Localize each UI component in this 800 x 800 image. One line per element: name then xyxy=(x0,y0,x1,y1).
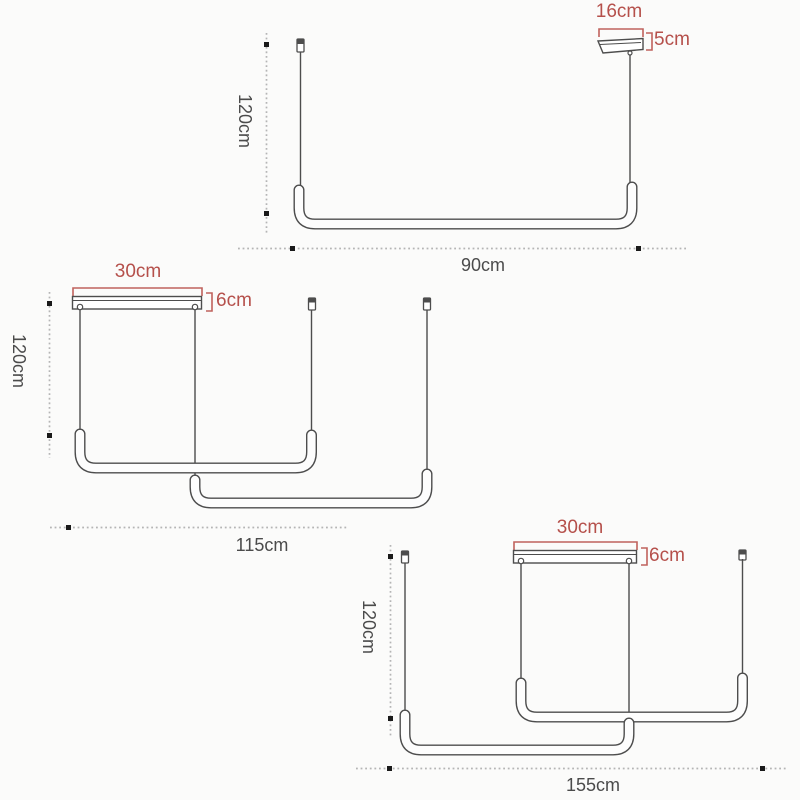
f2-light-bar-lower xyxy=(195,474,427,503)
f1-canopy-height-label: 5cm xyxy=(632,30,712,50)
f2-canopy xyxy=(73,297,202,310)
fixture-115cm-drawing xyxy=(47,288,431,530)
f2-drop-marker-bottom xyxy=(47,433,52,438)
f2-light-bar-upper xyxy=(80,434,312,468)
f2-canopy-width-label: 30cm xyxy=(98,262,178,282)
f1-wire-connector xyxy=(628,51,632,55)
f1-width-marker-right xyxy=(636,246,641,251)
f2-ceiling-mount-right-cap xyxy=(424,299,430,303)
f1-bar-width-label: 90cm xyxy=(443,255,523,275)
fixture-90cm-drawing xyxy=(238,29,686,251)
f2-hanger-left xyxy=(77,304,82,309)
f1-drop-marker-bottom xyxy=(264,211,269,216)
f1-ceiling-mount-cap xyxy=(298,40,304,45)
fixture-155cm-drawing xyxy=(356,542,788,771)
f1-light-bar-inner xyxy=(299,187,632,224)
f3-hanger-left xyxy=(518,558,523,563)
f1-light-bar xyxy=(299,187,632,224)
f3-canopy-height-label: 6cm xyxy=(627,546,707,566)
f1-drop-marker-top xyxy=(264,42,269,47)
f3-drop-marker-top xyxy=(388,554,393,559)
f2-drop-height-label: 120cm xyxy=(9,321,29,401)
f2-ceiling-mount-mid-cap xyxy=(309,299,315,303)
diagram-canvas xyxy=(0,0,800,800)
f3-light-bar-upper xyxy=(521,678,743,717)
f3-width-marker-right xyxy=(760,766,765,771)
f1-width-marker-left xyxy=(290,246,295,251)
f2-width-marker-left xyxy=(66,525,71,530)
f3-ceiling-mount-right-cap xyxy=(740,551,746,555)
f2-canopy-height-label: 6cm xyxy=(194,291,274,311)
f3-drop-marker-bottom xyxy=(388,716,393,721)
f3-ceiling-mount-left-cap xyxy=(402,552,408,556)
f2-bar-width-label: 115cm xyxy=(222,535,302,555)
f3-canopy-width-label: 30cm xyxy=(540,518,620,538)
f3-light-bar-upper-inner xyxy=(521,678,743,717)
f3-drop-height-label: 120cm xyxy=(359,587,379,667)
f2-drop-marker-top xyxy=(47,301,52,306)
f3-canopy-width-bracket xyxy=(514,542,637,550)
f3-canopy xyxy=(514,551,637,564)
f2-canopy-width-bracket xyxy=(73,288,202,296)
f1-canopy-width-label: 16cm xyxy=(579,2,659,22)
f3-width-marker-left xyxy=(387,766,392,771)
pendant-lamp-dimension-diagram: 16cm 5cm 120cm 90cm 30cm 6cm 120cm 115cm… xyxy=(0,0,800,800)
f3-bar-width-label: 155cm xyxy=(553,775,633,795)
f1-drop-height-label: 120cm xyxy=(235,81,255,161)
